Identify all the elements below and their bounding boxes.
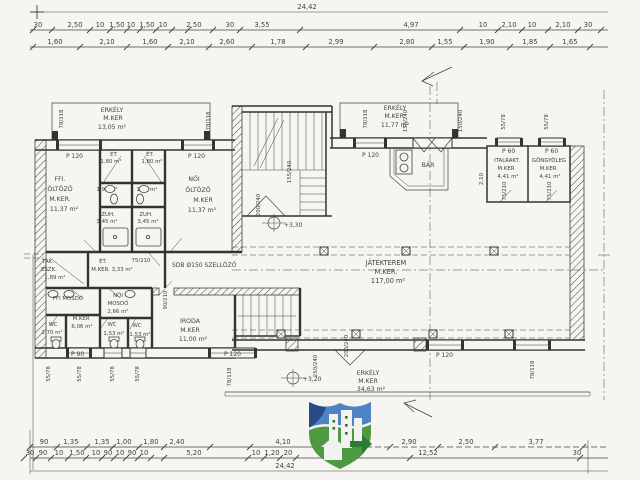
opening-size: 75/210 (502, 181, 508, 201)
opening-size: 55/78 (46, 366, 52, 382)
room-label: 117,00 m² (371, 277, 406, 285)
room-label: ERKÉLY (101, 105, 124, 114)
opening-size: 150/240 (458, 109, 464, 132)
room-label: 2,66 m² (107, 308, 128, 315)
dim: 90 (40, 438, 49, 446)
room-label: M.KER. 3,33 m² (91, 266, 132, 273)
room-label: ÉT. (146, 150, 154, 158)
room-label: M.KER (539, 166, 556, 172)
room-label: FFI MOSDÓ (53, 295, 83, 302)
level-value: +3,20 (303, 376, 322, 383)
room-label: 1,80 m² (100, 158, 121, 165)
entry-arrow-bottom (404, 400, 432, 417)
dim: 90 (104, 449, 113, 457)
room-label: M.KER (72, 316, 89, 322)
window-p60-a (495, 138, 523, 146)
window-wc (104, 348, 122, 358)
dim: 10 (92, 449, 101, 457)
dim: 10 (159, 21, 168, 29)
window-p120-balcony2 (513, 340, 551, 350)
dim: 10 (55, 449, 64, 457)
room-label: JÁTÉKTEREM (365, 258, 407, 267)
room-label: 34,63 m² (357, 386, 386, 393)
opening-size: 155/240 (287, 160, 293, 183)
room-label: WC (48, 322, 57, 328)
window-label: P 120 (66, 153, 83, 160)
opening-size: 55/78 (77, 366, 83, 382)
dim: 30 (584, 21, 593, 29)
window-label: P 120 (188, 153, 205, 160)
room-label: WC (132, 323, 141, 329)
room-label: 13,05 m² (98, 124, 127, 131)
room-label: 11,00 m² (179, 336, 208, 343)
dim: 12,52 (418, 449, 437, 457)
dim: 20 (284, 449, 293, 457)
dim: 10 (252, 449, 261, 457)
room-label: M.KER (103, 115, 123, 122)
dim: 10 (140, 449, 149, 457)
dim: 4,97 (403, 21, 418, 29)
opening-size: 150/240 (403, 109, 409, 132)
opening-size: 55/78 (501, 114, 507, 130)
dim: 2,10 (501, 21, 516, 29)
opening-size: 78/118 (227, 367, 233, 387)
dim: 1,50 (109, 21, 124, 29)
dim: 1,78 (270, 38, 285, 46)
room-label: WC (107, 322, 116, 328)
opening-size: 200/240 (256, 193, 262, 216)
opening-size: 75/210 (547, 181, 553, 201)
dim: 30 (226, 21, 235, 29)
dim: 1,60 (47, 38, 62, 46)
window-p120-b (181, 140, 215, 150)
dim: 30 (26, 449, 35, 457)
dim: 90 (128, 449, 137, 457)
washrooms: FFI MOSDÓ NŐI MOSDÓ 2,66 m² WC 1,70 m² M… (41, 288, 152, 382)
window-label: P 120 (436, 352, 453, 359)
window-p120-c (353, 138, 387, 148)
opening-size: 78/118 (530, 360, 536, 380)
floorplan-sheet: 24,42 30 2,50 10 1,50 10 1,50 10 2,50 30… (0, 0, 640, 480)
opening-size: 78/118 (363, 109, 369, 129)
dim-overall-top: 24,42 (297, 3, 316, 11)
room-label: ESZK. (41, 267, 57, 273)
opening-size: 200/240 (344, 334, 350, 357)
room-label: 6,06 m² (71, 323, 92, 330)
dim: 2,10 (99, 38, 114, 46)
room-label: 11,37 m² (188, 207, 217, 214)
dim: 1,65 (562, 38, 577, 46)
opening-size: 90/210 (163, 290, 169, 310)
window-label: P 60 (502, 148, 515, 155)
room-label: ZUH. (101, 212, 115, 218)
dim: 4,10 (275, 438, 290, 446)
window-label: P 60 (545, 148, 558, 155)
top-dimension-chains: 24,42 30 2,50 10 1,50 10 1,50 10 2,50 30… (30, 3, 608, 50)
opening-size: 78/118 (59, 109, 65, 129)
dim: 1,20 (264, 449, 279, 457)
window-label: P 120 (362, 152, 379, 159)
dim: 30 (34, 21, 43, 29)
balcony-top-right: ERKÉLY M.KER. 11,77 m² 78/118 (340, 103, 458, 138)
stair-wall (232, 106, 242, 252)
room-label: NŐI (113, 292, 123, 299)
room-label: M.KER (193, 197, 213, 204)
opening-size: 250/240 (313, 354, 319, 377)
room-label: M.KER (180, 327, 200, 334)
dim: 3,77 (528, 438, 543, 446)
dim: 1,80 (143, 438, 158, 446)
dim: 1,55 (437, 38, 452, 46)
dim: 1,50 (139, 21, 154, 29)
balcony-top-left: ERKÉLY M.KER 13,05 m² 78/118 (52, 103, 210, 140)
dim-overall-bottom: 24,42 (275, 462, 294, 470)
dim: 1,90 (479, 38, 494, 46)
dim: 2,50 (67, 21, 82, 29)
opening-size: 55/78 (544, 114, 550, 130)
dim: 10 (528, 21, 537, 29)
dim: 2,50 (458, 438, 473, 446)
window-wc2 (130, 348, 146, 358)
room-label: ÉT. (110, 150, 118, 158)
room-label: IRODA (180, 318, 201, 325)
room-label: M.KER. (49, 196, 70, 203)
room-label: ÖLTÖZŐ (47, 184, 72, 193)
floor-plan-canvas: 24,42 30 2,50 10 1,50 10 1,50 10 2,50 30… (0, 0, 640, 480)
room-label: 1,80 m² (141, 158, 162, 165)
dim: 2,80 (399, 38, 414, 46)
room-label: TAK. (41, 259, 54, 265)
dim: 1,60 (142, 38, 157, 46)
room-label: ZUH. (139, 212, 153, 218)
level-value: +3,30 (284, 222, 303, 229)
window-label: P 120 (224, 351, 241, 358)
corridor-band: TAK. ESZK. 1,89 m² ÉT. M.KER. 3,33 m² 75… (41, 252, 237, 288)
room-label: NŐI (188, 174, 199, 183)
room-label: 11,37 m² (50, 206, 79, 213)
room-label: 4,41 m² (539, 173, 560, 180)
dim: 90 (39, 449, 48, 457)
opening-size: 55/78 (135, 366, 141, 382)
dim: 2,10 (555, 21, 570, 29)
room-label: ITALRAKT. (494, 158, 520, 164)
room-label: MOSDÓ (108, 300, 129, 307)
dim: 10 (479, 21, 488, 29)
east-wall (570, 146, 584, 340)
window-p120-a (56, 140, 102, 150)
dim: 1,85 (522, 38, 537, 46)
room-label: 1,70 m² (41, 329, 62, 336)
balcony-bottom: 200/240 250/240 P 120 78/118 ERKÉLY M.KE… (225, 334, 590, 396)
dim: 30 (573, 449, 582, 457)
room-label: ÉT. (99, 257, 107, 265)
dim: 1,35 (94, 438, 109, 446)
window-label: P 90 (71, 351, 84, 358)
vent-label: SDB Ø150 SZELLŐZŐ (172, 262, 237, 269)
room-label: 1,53 m² (103, 330, 124, 337)
room-label: 3,45 m² (137, 218, 158, 225)
dim: 2,50 (186, 21, 201, 29)
room-label: 3,45 m² (96, 218, 117, 225)
entry-arrow-top (422, 67, 452, 104)
dim: 2,10 (179, 38, 194, 46)
stair-treads-upper (242, 112, 326, 216)
watermark-logo (309, 402, 372, 469)
dim: 2,40 (169, 438, 184, 446)
dim: 10 (127, 21, 136, 29)
room-label: M.KER (358, 378, 378, 385)
room-label: M.KER (497, 166, 514, 172)
dim: 5,20 (186, 449, 201, 457)
dim: 1,00 (116, 438, 131, 446)
room-label: BÁR (422, 160, 435, 169)
dim: 1,50 (69, 449, 84, 457)
dim: 2,90 (401, 438, 416, 446)
upper-stairwell: 200/240 155/240 (232, 106, 332, 216)
dim: 10 (116, 449, 125, 457)
west-wall (35, 140, 46, 358)
dim: 1,35 (63, 438, 78, 446)
room-label: ÖLTÖZŐ (185, 185, 210, 194)
game-hall: JÁTÉKTEREM M.KER. 117,00 m² +3,30 (232, 214, 570, 338)
bar-counter: BÁR (390, 148, 448, 190)
dim: 10 (96, 21, 105, 29)
storage-rooms: P 60 P 60 55/78 55/78 ITALRAKT. M.KER 4,… (479, 114, 570, 202)
room-label: 1,89 m² (44, 274, 65, 281)
opening-size: 55/78 (110, 366, 116, 382)
room-label: GÖNGYÖLEG (532, 157, 566, 164)
window-p60-b (538, 138, 566, 146)
room-label: FFI. (55, 176, 66, 183)
room-label: M.KER. (375, 268, 398, 276)
window-p120-balcony (426, 340, 464, 350)
opening-size: 78/118 (206, 111, 212, 131)
dim: 2,99 (328, 38, 343, 46)
room-label: ERKÉLY (357, 368, 380, 377)
room-label: 4,41 m² (497, 173, 518, 180)
dim: 2,60 (219, 38, 234, 46)
opening-size: 2,10 (479, 172, 485, 185)
opening-size: 75/210 (132, 258, 152, 264)
dim: 3,55 (254, 21, 269, 29)
